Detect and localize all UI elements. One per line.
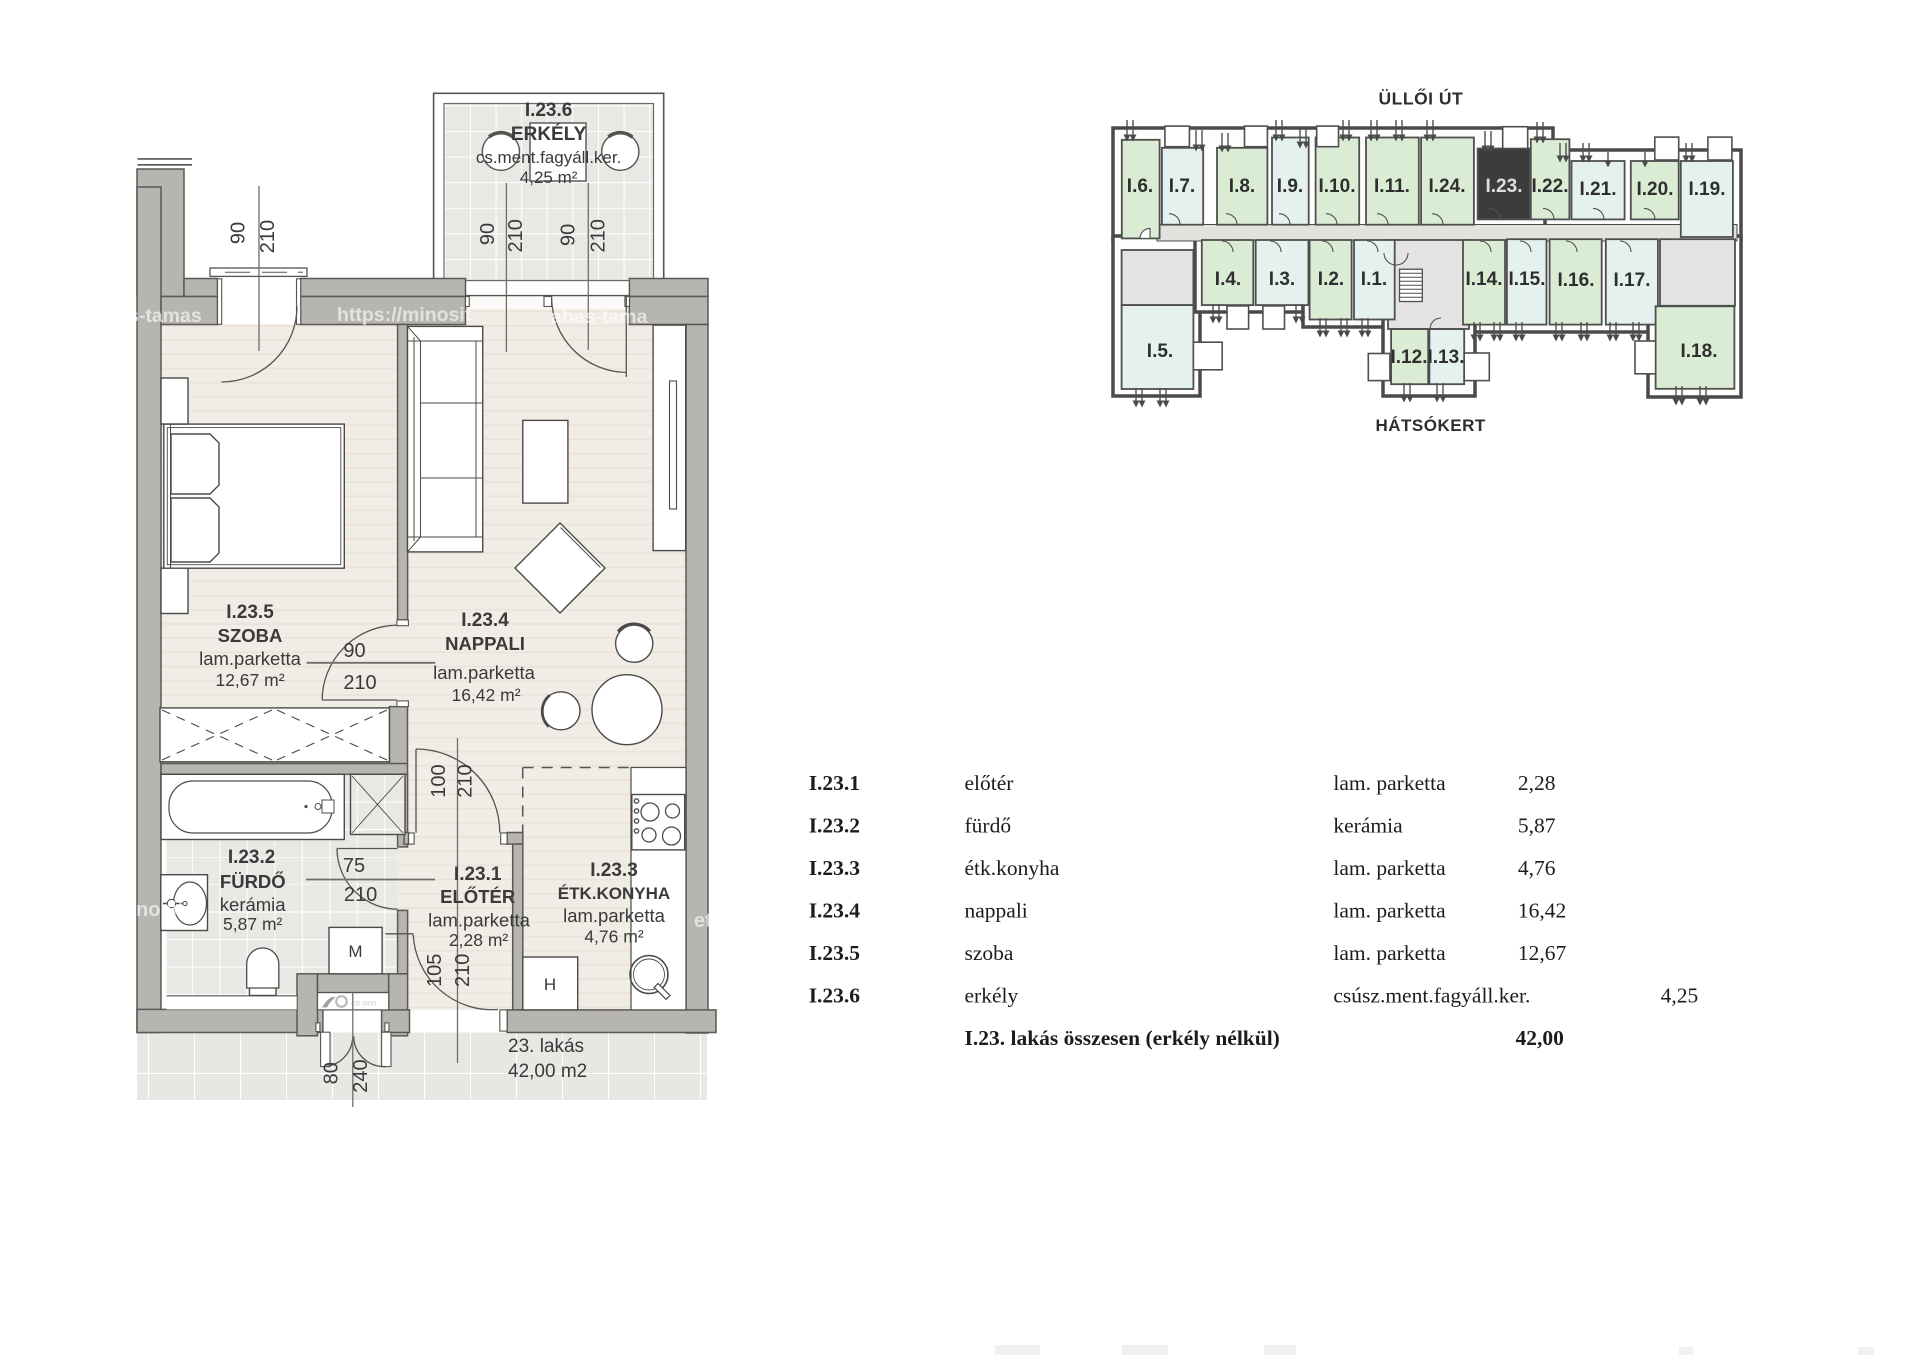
svg-text:42,00: 42,00: [1516, 1026, 1564, 1050]
svg-text:co ooo: co ooo: [351, 998, 377, 1008]
svg-text:4,76: 4,76: [1518, 856, 1556, 880]
svg-text:SZOBA: SZOBA: [218, 625, 283, 646]
svg-text:I.23. lakás összesen (erkély n: I.23. lakás összesen (erkély nélkül): [965, 1026, 1280, 1050]
svg-text:5,87 m²: 5,87 m²: [223, 914, 282, 934]
svg-text:23. lakás: 23. lakás: [508, 1036, 584, 1057]
svg-text:105: 105: [424, 954, 446, 987]
svg-text:lam. parketta: lam. parketta: [1333, 941, 1446, 965]
svg-text:16,42: 16,42: [1518, 899, 1566, 923]
svg-text:lam. parketta: lam. parketta: [1333, 771, 1446, 795]
svg-text:210: 210: [452, 954, 474, 987]
svg-text:210: 210: [505, 219, 527, 252]
svg-text:I.23.3: I.23.3: [590, 860, 638, 881]
svg-text:https://minosit: https://minosit: [337, 304, 472, 326]
svg-text:ELŐTÉR: ELŐTÉR: [440, 886, 515, 907]
svg-text:ÉTK.KONYHA: ÉTK.KONYHA: [558, 884, 670, 903]
svg-text:I.1.: I.1.: [1361, 269, 1387, 290]
svg-text:I.6.: I.6.: [1127, 176, 1153, 197]
svg-text:2,28: 2,28: [1518, 771, 1556, 795]
svg-text:I.9.: I.9.: [1277, 176, 1303, 197]
svg-text:NAPPALI: NAPPALI: [445, 633, 525, 654]
svg-text:240: 240: [350, 1059, 372, 1092]
svg-text:lam. parketta: lam. parketta: [1333, 856, 1446, 880]
svg-text:I.23.1: I.23.1: [809, 771, 860, 795]
svg-text:80: 80: [320, 1062, 342, 1084]
svg-text:ett: ett: [694, 910, 719, 932]
svg-text:étk.konyha: étk.konyha: [965, 856, 1060, 880]
svg-text:210: 210: [455, 764, 477, 797]
svg-text:lam.parketta: lam.parketta: [433, 662, 536, 683]
svg-text:csúsz.ment.fagyáll.ker.: csúsz.ment.fagyáll.ker.: [1333, 984, 1530, 1008]
svg-text:I.11.: I.11.: [1374, 176, 1410, 197]
svg-text:H: H: [544, 975, 556, 994]
svg-text:I.4.: I.4.: [1215, 269, 1241, 290]
svg-text:I.23.3: I.23.3: [809, 856, 861, 880]
svg-text:210: 210: [343, 672, 376, 694]
svg-text:210: 210: [587, 219, 609, 252]
svg-text:90: 90: [227, 222, 249, 244]
svg-text:I.12.: I.12.: [1391, 347, 1428, 368]
svg-text:I.23.4: I.23.4: [461, 610, 509, 631]
svg-text:HÁTSÓKERT: HÁTSÓKERT: [1375, 416, 1485, 435]
svg-text:I.23.1: I.23.1: [454, 864, 502, 885]
svg-text:I.20.: I.20.: [1637, 179, 1674, 200]
svg-text:2,28 m²: 2,28 m²: [449, 930, 508, 950]
svg-text:90: 90: [343, 640, 365, 662]
svg-text:12,67 m²: 12,67 m²: [215, 670, 284, 690]
svg-text:nosit: nosit: [136, 899, 184, 921]
svg-text:75: 75: [343, 855, 365, 877]
svg-text:kerámia: kerámia: [220, 894, 287, 915]
svg-text:I.19.: I.19.: [1689, 179, 1726, 200]
svg-text:I.15.: I.15.: [1509, 269, 1546, 290]
svg-text:nappali: nappali: [965, 899, 1028, 923]
svg-text:kerámia: kerámia: [1333, 814, 1403, 838]
svg-text:210: 210: [257, 220, 279, 253]
svg-text:I.13.: I.13.: [1428, 347, 1465, 368]
svg-text:fürdő: fürdő: [965, 814, 1012, 838]
svg-text:I.23.2: I.23.2: [809, 814, 860, 838]
svg-text:I.24.: I.24.: [1429, 176, 1466, 197]
svg-text:FÜRDŐ: FÜRDŐ: [220, 871, 286, 892]
svg-text:100: 100: [428, 764, 450, 797]
svg-text:I.23.4: I.23.4: [809, 899, 861, 923]
svg-text:abas-tama: abas-tama: [551, 306, 648, 328]
svg-text:I.22.: I.22.: [1532, 176, 1569, 197]
svg-text:210: 210: [344, 884, 377, 906]
svg-text:90: 90: [477, 223, 499, 245]
svg-text:I.17.: I.17.: [1614, 270, 1651, 291]
svg-text:I.23.5: I.23.5: [226, 602, 274, 623]
svg-text:előtér: előtér: [965, 771, 1014, 795]
svg-text:cs.ment.fagyáll.ker.: cs.ment.fagyáll.ker.: [476, 148, 622, 167]
svg-text:16,42 m²: 16,42 m²: [451, 685, 520, 705]
svg-text:I.10.: I.10.: [1319, 176, 1356, 197]
svg-text:I.7.: I.7.: [1169, 176, 1195, 197]
svg-text:4,25 m²: 4,25 m²: [520, 168, 578, 187]
svg-text:I.23.2: I.23.2: [228, 847, 276, 868]
svg-text:I.14.: I.14.: [1466, 269, 1503, 290]
svg-text:szoba: szoba: [965, 941, 1014, 965]
svg-text:s-tamas: s-tamas: [128, 305, 202, 327]
svg-text:lam.parketta: lam.parketta: [563, 905, 666, 926]
svg-text:I.23.6: I.23.6: [809, 984, 861, 1008]
svg-text:lam. parketta: lam. parketta: [1333, 899, 1446, 923]
svg-text:lam.parketta: lam.parketta: [428, 910, 531, 931]
svg-text:ERKÉLY: ERKÉLY: [511, 123, 587, 145]
svg-text:I.21.: I.21.: [1580, 179, 1617, 200]
svg-text:I.3.: I.3.: [1269, 269, 1295, 290]
svg-text:I.2.: I.2.: [1318, 269, 1344, 290]
svg-text:I.5.: I.5.: [1147, 341, 1173, 362]
svg-text:12,67: 12,67: [1518, 941, 1567, 965]
svg-text:I.18.: I.18.: [1681, 341, 1718, 362]
svg-text:42,00 m2: 42,00 m2: [508, 1061, 587, 1082]
svg-text:I.23.: I.23.: [1486, 176, 1523, 197]
svg-text:I.23.5: I.23.5: [809, 941, 860, 965]
svg-text:I.23.6: I.23.6: [525, 100, 573, 121]
svg-text:4,76 m²: 4,76 m²: [584, 927, 643, 947]
svg-text:4,25: 4,25: [1661, 984, 1699, 1008]
svg-text:erkély: erkély: [965, 984, 1019, 1008]
svg-text:90: 90: [557, 224, 579, 246]
svg-text:ÜLLŐI ÚT: ÜLLŐI ÚT: [1379, 88, 1464, 109]
svg-text:5,87: 5,87: [1518, 814, 1556, 838]
svg-text:I.8.: I.8.: [1229, 176, 1255, 197]
svg-text:M: M: [348, 942, 362, 961]
svg-text:lam.parketta: lam.parketta: [199, 648, 302, 669]
svg-text:I.16.: I.16.: [1558, 270, 1595, 291]
